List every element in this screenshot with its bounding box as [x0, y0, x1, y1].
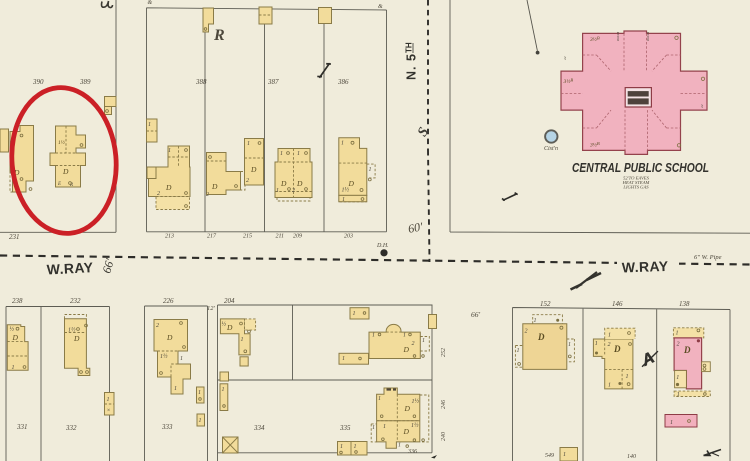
svg-text:2: 2: [292, 188, 295, 194]
svg-text:2: 2: [525, 329, 528, 335]
svg-text:1: 1: [297, 151, 300, 157]
svg-text:209: 209: [293, 234, 302, 240]
svg-text:336: 336: [407, 449, 417, 455]
svg-text:204: 204: [224, 297, 235, 305]
svg-text:1: 1: [340, 444, 343, 450]
svg-text:1: 1: [222, 387, 225, 393]
svg-text:1: 1: [676, 375, 679, 381]
svg-text:1: 1: [398, 443, 401, 449]
svg-text:390: 390: [32, 78, 44, 86]
svg-text:TH: TH: [405, 42, 414, 53]
svg-text:211: 211: [276, 234, 285, 240]
svg-text:W.RAY: W.RAY: [46, 259, 94, 277]
svg-text:1: 1: [353, 311, 356, 317]
svg-text:24: 24: [700, 104, 704, 108]
svg-text:1: 1: [372, 333, 375, 339]
svg-text:½: ½: [10, 326, 15, 333]
svg-text:1½: 1½: [342, 187, 350, 194]
svg-text:R: R: [213, 27, 225, 44]
svg-text:138: 138: [679, 300, 690, 308]
svg-text:1: 1: [107, 397, 110, 403]
svg-text:240: 240: [440, 432, 447, 441]
svg-text:213: 213: [165, 234, 174, 240]
svg-text:1: 1: [12, 365, 15, 371]
svg-text:D: D: [250, 165, 257, 174]
svg-text:Cist'n: Cist'n: [544, 146, 558, 152]
svg-text:232: 232: [70, 297, 81, 305]
svg-text:1: 1: [342, 356, 345, 362]
svg-text:D: D: [296, 179, 303, 188]
svg-text:203: 203: [344, 234, 353, 240]
svg-text:2: 2: [206, 192, 209, 198]
svg-text:1: 1: [670, 420, 673, 426]
svg-text:1: 1: [608, 333, 611, 339]
svg-text:1: 1: [168, 148, 171, 154]
svg-text:6″ W. Pipe: 6″ W. Pipe: [694, 254, 722, 261]
svg-text:1½: 1½: [411, 422, 419, 429]
svg-text:ROOM: ROOM: [646, 31, 650, 42]
svg-text:1: 1: [372, 425, 375, 431]
svg-text:1: 1: [342, 197, 345, 203]
svg-text:1: 1: [403, 333, 406, 339]
svg-text:2: 2: [608, 342, 611, 348]
svg-text:1: 1: [676, 331, 679, 337]
svg-text:1: 1: [568, 342, 571, 348]
svg-text:W.RAY: W.RAY: [622, 258, 669, 276]
svg-text:1: 1: [677, 392, 680, 398]
svg-text:1: 1: [563, 452, 566, 458]
svg-text:549: 549: [545, 452, 554, 459]
svg-text:1: 1: [626, 374, 629, 380]
svg-text:388: 388: [195, 78, 207, 86]
svg-text:12′: 12′: [207, 305, 216, 312]
svg-text:D: D: [683, 345, 691, 355]
svg-text:252: 252: [441, 348, 447, 357]
svg-text:1: 1: [383, 424, 386, 430]
svg-text:215: 215: [243, 234, 252, 240]
svg-text:D: D: [403, 427, 410, 436]
svg-text:1: 1: [517, 348, 520, 354]
svg-text:CENTRAL PUBLIC SCHOOL: CENTRAL PUBLIC SCHOOL: [572, 160, 709, 175]
svg-text:1: 1: [199, 418, 202, 424]
svg-text:1½: 1½: [58, 139, 65, 146]
svg-text:1½: 1½: [160, 353, 168, 360]
svg-text:1: 1: [341, 141, 344, 147]
svg-text:2: 2: [412, 341, 415, 347]
svg-text:1: 1: [276, 188, 279, 194]
svg-text:ROOM: ROOM: [616, 31, 620, 42]
svg-text:LIGHTS GAS: LIGHTS GAS: [622, 185, 649, 190]
svg-text:D: D: [166, 333, 173, 342]
svg-text:1: 1: [534, 318, 537, 324]
svg-text:332: 332: [65, 424, 77, 432]
svg-text:217: 217: [207, 234, 217, 240]
svg-text:1: 1: [148, 122, 151, 128]
svg-text:386: 386: [337, 78, 349, 86]
svg-text:231: 231: [9, 233, 20, 241]
svg-text:66′: 66′: [471, 310, 481, 319]
svg-text:2: 2: [157, 191, 160, 197]
svg-text:152: 152: [540, 300, 551, 308]
svg-text:D: D: [537, 332, 545, 342]
svg-text:140: 140: [627, 453, 636, 460]
svg-text:D: D: [226, 323, 233, 332]
svg-text:D: D: [165, 183, 172, 192]
svg-text:E: E: [57, 182, 61, 187]
svg-text:238: 238: [12, 297, 23, 305]
svg-text:146: 146: [612, 300, 623, 308]
svg-text:2: 2: [156, 323, 159, 329]
svg-text:335: 335: [339, 424, 351, 432]
svg-text:389: 389: [79, 78, 91, 86]
svg-text:60′: 60′: [407, 219, 424, 235]
svg-text:1: 1: [198, 390, 201, 396]
svg-text:1: 1: [241, 337, 244, 343]
svg-text:&: &: [148, 0, 153, 6]
svg-text:D: D: [403, 345, 410, 354]
svg-text:24: 24: [563, 56, 567, 60]
svg-text:1: 1: [422, 338, 425, 344]
svg-text:1: 1: [354, 444, 357, 450]
svg-text:D.H.: D.H.: [376, 243, 389, 249]
svg-text:D: D: [62, 167, 69, 176]
svg-text:226: 226: [163, 297, 174, 305]
svg-text:D: D: [211, 182, 218, 191]
svg-text:D: D: [404, 404, 411, 413]
svg-text:2: 2: [246, 178, 249, 184]
svg-text:1½: 1½: [412, 398, 420, 405]
svg-text:1: 1: [180, 356, 183, 362]
svg-text:246: 246: [440, 400, 447, 409]
svg-text:&: &: [378, 4, 383, 10]
svg-text:N. 5: N. 5: [405, 53, 419, 80]
svg-text:D: D: [280, 179, 287, 188]
svg-text:D: D: [12, 333, 19, 342]
svg-text:1: 1: [595, 341, 598, 347]
svg-text:331: 331: [16, 423, 28, 431]
svg-text:1: 1: [378, 396, 381, 402]
svg-text:333: 333: [161, 423, 173, 431]
svg-text:1: 1: [369, 167, 372, 173]
svg-text:1: 1: [608, 383, 611, 389]
svg-text:×: ×: [107, 408, 111, 414]
svg-text:D: D: [73, 334, 80, 343]
svg-text:½: ½: [222, 321, 227, 328]
svg-text:1½: 1½: [68, 327, 76, 334]
svg-text:387: 387: [267, 78, 279, 86]
svg-text:1: 1: [280, 151, 283, 157]
svg-text:334: 334: [253, 424, 265, 432]
svg-text:2: 2: [677, 342, 680, 348]
svg-text:1: 1: [247, 141, 250, 147]
svg-text:1: 1: [174, 386, 177, 392]
svg-text:D: D: [613, 344, 621, 354]
